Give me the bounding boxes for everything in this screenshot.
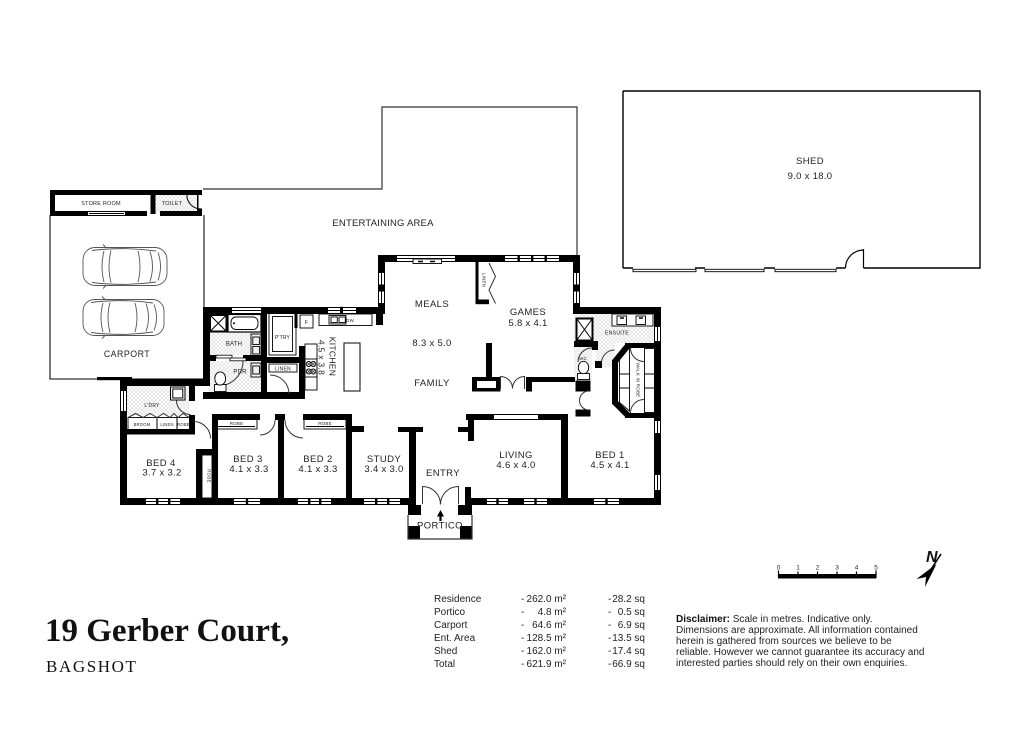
svg-text:Portico: Portico [434, 607, 466, 618]
svg-text:TOILET: TOILET [162, 201, 183, 207]
svg-text:28.2 sq: 28.2 sq [612, 594, 645, 605]
svg-text:5: 5 [874, 565, 878, 572]
svg-text:WALK IN ROBE: WALK IN ROBE [636, 363, 641, 398]
svg-text:66.9 sq: 66.9 sq [612, 659, 645, 670]
svg-text:CARPORT: CARPORT [104, 349, 150, 359]
svg-text:-: - [608, 633, 611, 644]
svg-text:BAGSHOT: BAGSHOT [46, 657, 138, 676]
svg-text:0: 0 [777, 565, 781, 572]
svg-text:N: N [926, 549, 938, 566]
svg-text:4.5 x 3.8: 4.5 x 3.8 [317, 340, 327, 375]
svg-text:4.5 x 4.1: 4.5 x 4.1 [590, 460, 629, 471]
svg-text:L'DRY: L'DRY [144, 403, 160, 409]
svg-text:1: 1 [796, 565, 800, 572]
svg-text:621.9 m²: 621.9 m² [527, 659, 567, 670]
svg-text:GAMES: GAMES [510, 307, 546, 318]
svg-text:-: - [608, 646, 611, 657]
svg-text:LINEN: LINEN [482, 273, 487, 287]
svg-text:5.8 x 4.1: 5.8 x 4.1 [508, 318, 547, 329]
svg-text:2: 2 [816, 565, 820, 572]
svg-text:-: - [521, 607, 524, 618]
svg-text:LINEN: LINEN [275, 367, 291, 373]
svg-text:Shed: Shed [434, 646, 457, 657]
svg-text:162.0 m²: 162.0 m² [527, 646, 567, 657]
svg-text:-: - [521, 659, 524, 670]
svg-text:ENTERTAINING AREA: ENTERTAINING AREA [332, 218, 434, 229]
svg-text:herein is gathered from source: herein is gathered from sources we belie… [676, 636, 892, 647]
svg-text:0.5 sq: 0.5 sq [618, 607, 645, 618]
svg-text:ROBE: ROBE [177, 422, 190, 427]
svg-text:STORE ROOM: STORE ROOM [81, 201, 121, 207]
svg-text:8.3 x 5.0: 8.3 x 5.0 [412, 338, 451, 349]
svg-text:PDR: PDR [233, 370, 247, 376]
svg-text:-: - [521, 646, 524, 657]
svg-text:-: - [608, 594, 611, 605]
svg-text:-: - [608, 620, 611, 631]
svg-text:4.1 x 3.3: 4.1 x 3.3 [298, 464, 337, 475]
svg-text:ROBE: ROBE [318, 421, 332, 426]
svg-text:Disclaimer: Scale in metres. I: Disclaimer: Scale in metres. Indicative … [676, 614, 873, 625]
svg-text:DW: DW [346, 318, 354, 323]
svg-text:4.1 x 3.3: 4.1 x 3.3 [229, 464, 268, 475]
svg-text:ENSUITE: ENSUITE [605, 331, 629, 337]
svg-text:BATH: BATH [226, 342, 242, 348]
svg-text:PORTICO: PORTICO [417, 521, 463, 532]
svg-text:Dimensions are approximate. Al: Dimensions are approximate. All informat… [676, 625, 918, 636]
svg-text:FAMILY: FAMILY [414, 378, 450, 389]
svg-text:BROOM: BROOM [134, 422, 151, 427]
svg-text:3.7 x 3.2: 3.7 x 3.2 [142, 468, 181, 479]
svg-text:262.0 m²: 262.0 m² [527, 594, 567, 605]
svg-text:4.8 m²: 4.8 m² [538, 607, 567, 618]
svg-text:Ent. Area: Ent. Area [434, 633, 476, 644]
svg-text:ROBE: ROBE [230, 421, 244, 426]
svg-text:3: 3 [835, 565, 839, 572]
svg-text:F: F [305, 320, 308, 326]
svg-text:Residence: Residence [434, 594, 482, 605]
svg-text:4.6 x 4.0: 4.6 x 4.0 [496, 460, 535, 471]
svg-text:9.0 x 18.0: 9.0 x 18.0 [788, 171, 833, 182]
svg-text:MEALS: MEALS [415, 299, 449, 310]
svg-text:-: - [521, 594, 524, 605]
svg-text:reliable. However we cannot gu: reliable. However we cannot guarantee it… [676, 647, 924, 658]
svg-text:interested parties should rely: interested parties should rely on their … [676, 658, 907, 669]
svg-text:Total: Total [434, 659, 455, 670]
svg-text:ENTRY: ENTRY [426, 468, 460, 479]
svg-text:LINEN: LINEN [160, 422, 173, 427]
svg-text:Carport: Carport [434, 620, 468, 631]
svg-text:KITCHEN: KITCHEN [328, 337, 338, 376]
svg-text:WC: WC [579, 356, 587, 361]
svg-text:17.4 sq: 17.4 sq [612, 646, 645, 657]
svg-text:-: - [521, 633, 524, 644]
svg-text:128.5 m²: 128.5 m² [527, 633, 567, 644]
svg-text:-: - [608, 607, 611, 618]
svg-text:19 Gerber Court,: 19 Gerber Court, [45, 613, 289, 649]
svg-text:SHED: SHED [796, 156, 824, 167]
svg-text:-: - [608, 659, 611, 670]
svg-text:P'TRY: P'TRY [275, 335, 291, 341]
svg-text:-: - [521, 620, 524, 631]
svg-text:6.9 sq: 6.9 sq [618, 620, 645, 631]
svg-text:ROBE: ROBE [207, 469, 212, 483]
svg-text:3.4 x 3.0: 3.4 x 3.0 [364, 464, 403, 475]
svg-text:13.5 sq: 13.5 sq [612, 633, 645, 644]
svg-text:4: 4 [855, 565, 859, 572]
svg-text:64.6 m²: 64.6 m² [532, 620, 567, 631]
